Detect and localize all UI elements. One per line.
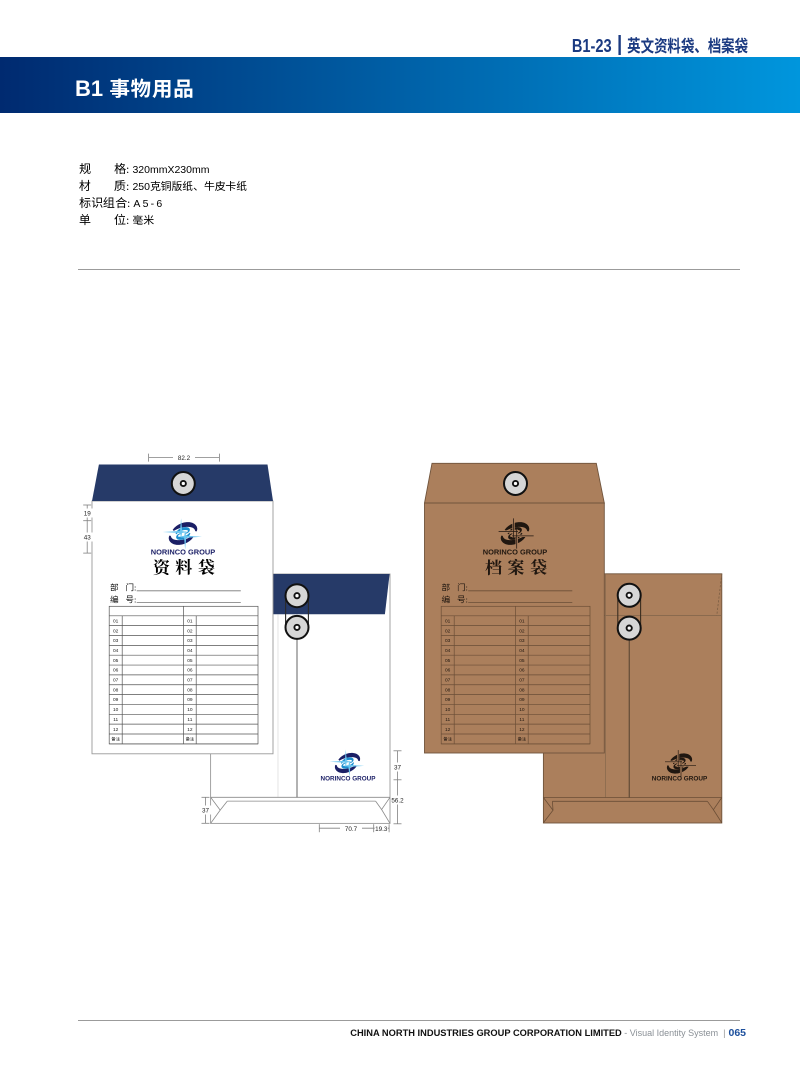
svg-text:09: 09 (113, 697, 119, 703)
svg-text:06: 06 (445, 668, 451, 674)
svg-text:82.2: 82.2 (178, 455, 191, 462)
svg-text:08: 08 (519, 687, 525, 693)
svg-text:70.7: 70.7 (345, 826, 358, 833)
svg-text:11: 11 (113, 717, 118, 723)
svg-text:01: 01 (445, 618, 451, 624)
svg-text:10: 10 (519, 707, 525, 713)
svg-text:02: 02 (445, 628, 451, 634)
svg-text:01: 01 (113, 618, 119, 624)
svg-text:04: 04 (519, 648, 525, 654)
svg-text:03: 03 (113, 638, 119, 644)
svg-text:06: 06 (187, 668, 193, 674)
svg-text:12: 12 (519, 727, 525, 733)
svg-text:08: 08 (187, 687, 193, 693)
svg-text:09: 09 (519, 697, 525, 703)
svg-text:06: 06 (519, 668, 525, 674)
svg-text:19.3: 19.3 (375, 826, 388, 833)
svg-text:备注: 备注 (111, 737, 121, 743)
svg-text:11: 11 (187, 717, 192, 723)
svg-text:12: 12 (445, 727, 451, 733)
svg-text:11: 11 (445, 717, 450, 723)
svg-text:11: 11 (519, 717, 524, 723)
svg-text:08: 08 (113, 687, 119, 693)
svg-text:备注: 备注 (517, 737, 527, 743)
svg-text:02: 02 (519, 628, 525, 634)
svg-text:备注: 备注 (443, 737, 453, 743)
svg-text:37: 37 (202, 808, 210, 815)
svg-text:10: 10 (113, 707, 119, 713)
svg-text:04: 04 (187, 648, 193, 654)
svg-text:05: 05 (519, 658, 525, 664)
svg-text:资料袋: 资料袋 (153, 554, 221, 579)
svg-text:04: 04 (445, 648, 451, 654)
svg-text:NORINCO GROUP: NORINCO GROUP (652, 776, 708, 783)
svg-text:NORINCO GROUP: NORINCO GROUP (321, 776, 377, 783)
svg-text:09: 09 (187, 697, 193, 703)
svg-text:05: 05 (113, 658, 119, 664)
svg-text:43: 43 (84, 535, 92, 542)
svg-text:备注: 备注 (185, 737, 195, 743)
svg-text:56.2: 56.2 (391, 798, 404, 805)
svg-text:05: 05 (445, 658, 451, 664)
svg-text:03: 03 (445, 638, 451, 644)
svg-text:10: 10 (187, 707, 193, 713)
svg-text:03: 03 (519, 638, 525, 644)
svg-text:02: 02 (113, 628, 119, 634)
svg-text:10: 10 (445, 707, 451, 713)
svg-text:06: 06 (113, 668, 119, 674)
svg-text:07: 07 (519, 678, 525, 684)
svg-text:07: 07 (113, 678, 119, 684)
svg-text:01: 01 (187, 618, 193, 624)
svg-text:12: 12 (113, 727, 119, 733)
svg-text:02: 02 (187, 628, 193, 634)
svg-text:09: 09 (445, 697, 451, 703)
svg-text:05: 05 (187, 658, 193, 664)
svg-text:档案袋: 档案袋 (485, 554, 553, 579)
svg-text:37: 37 (394, 765, 402, 772)
svg-text:01: 01 (519, 618, 525, 624)
svg-text:03: 03 (187, 638, 193, 644)
svg-text:19: 19 (84, 511, 92, 518)
svg-text:12: 12 (187, 727, 193, 733)
svg-text:08: 08 (445, 687, 451, 693)
svg-text:04: 04 (113, 648, 119, 654)
svg-text:07: 07 (445, 678, 451, 684)
svg-text:07: 07 (187, 678, 193, 684)
